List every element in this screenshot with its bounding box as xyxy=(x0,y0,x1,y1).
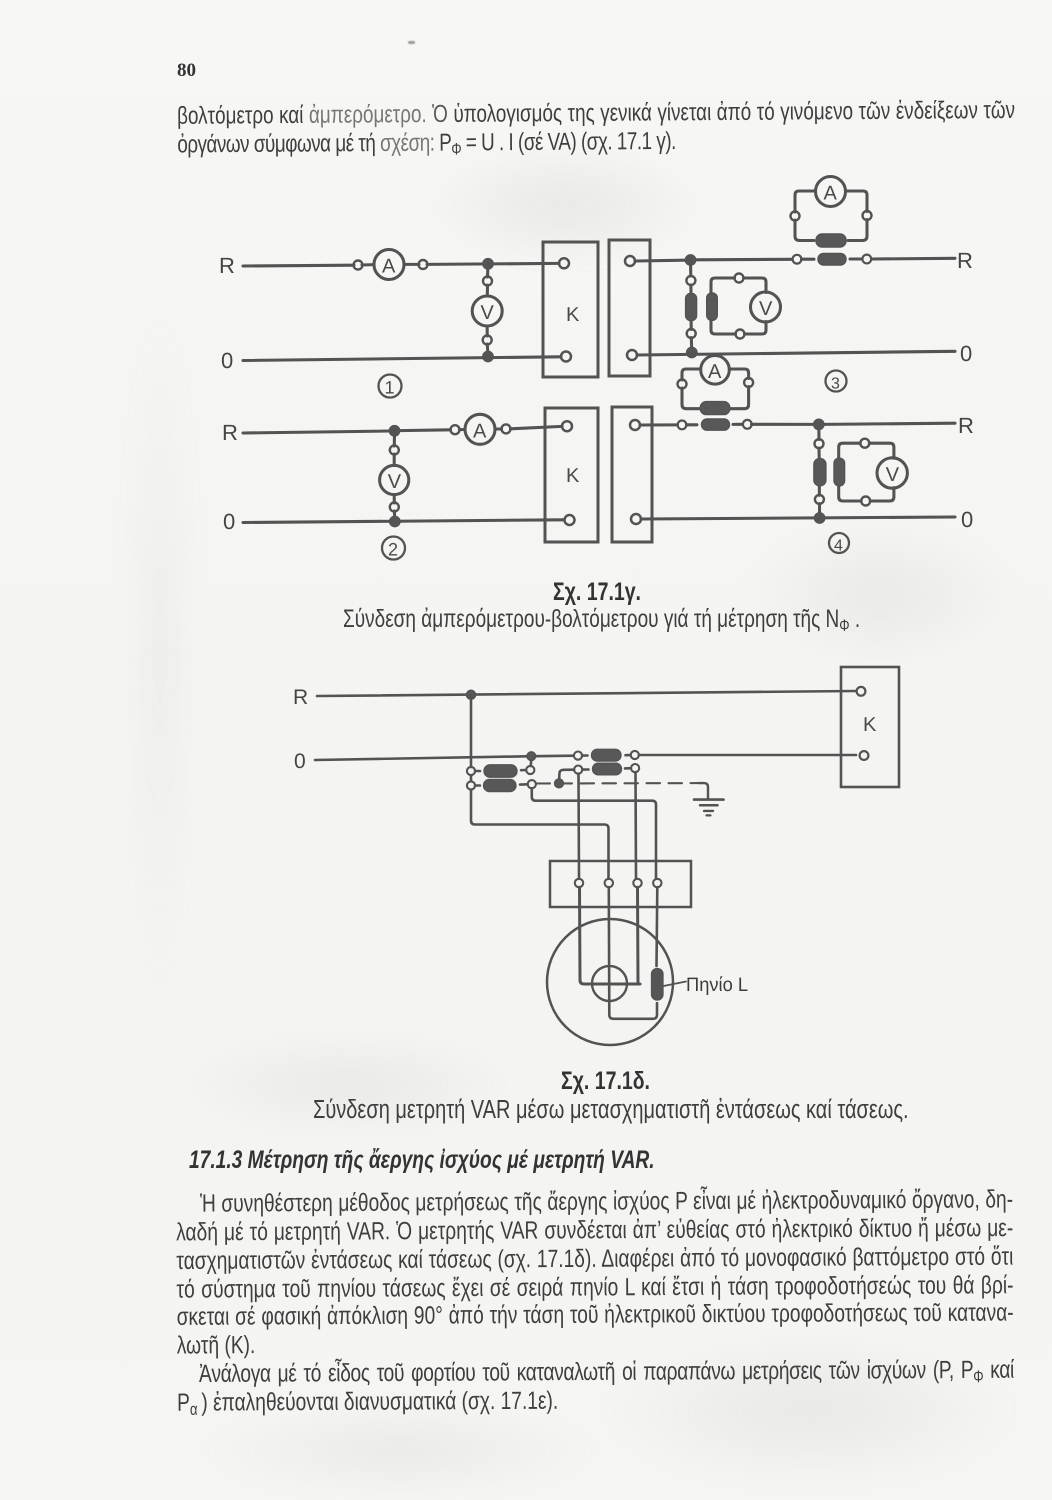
svg-text:0: 0 xyxy=(961,507,973,532)
svg-text:0: 0 xyxy=(294,750,306,773)
svg-text:R: R xyxy=(293,686,308,709)
svg-text:V: V xyxy=(388,471,402,493)
svg-text:0: 0 xyxy=(960,341,972,366)
svg-text:R: R xyxy=(222,420,238,445)
svg-text:V: V xyxy=(759,298,773,320)
svg-text:A: A xyxy=(473,420,487,442)
svg-text:4: 4 xyxy=(834,538,843,555)
svg-text:V: V xyxy=(481,302,495,324)
svg-text:2: 2 xyxy=(388,540,398,560)
svg-text:0: 0 xyxy=(223,509,235,534)
svg-text:Πηνίο L: Πηνίο L xyxy=(686,974,748,996)
svg-text:R: R xyxy=(957,248,973,273)
svg-text:A: A xyxy=(824,183,838,205)
svg-text:A: A xyxy=(708,361,722,383)
svg-text:R: R xyxy=(219,253,235,278)
svg-text:R: R xyxy=(958,413,974,438)
svg-text:3: 3 xyxy=(831,376,840,393)
svg-text:K: K xyxy=(566,304,580,326)
svg-text:0: 0 xyxy=(221,348,233,373)
svg-text:V: V xyxy=(886,464,900,486)
svg-text:K: K xyxy=(566,465,580,487)
svg-text:A: A xyxy=(382,256,396,278)
svg-text:K: K xyxy=(863,714,877,736)
svg-text:1: 1 xyxy=(385,378,395,398)
